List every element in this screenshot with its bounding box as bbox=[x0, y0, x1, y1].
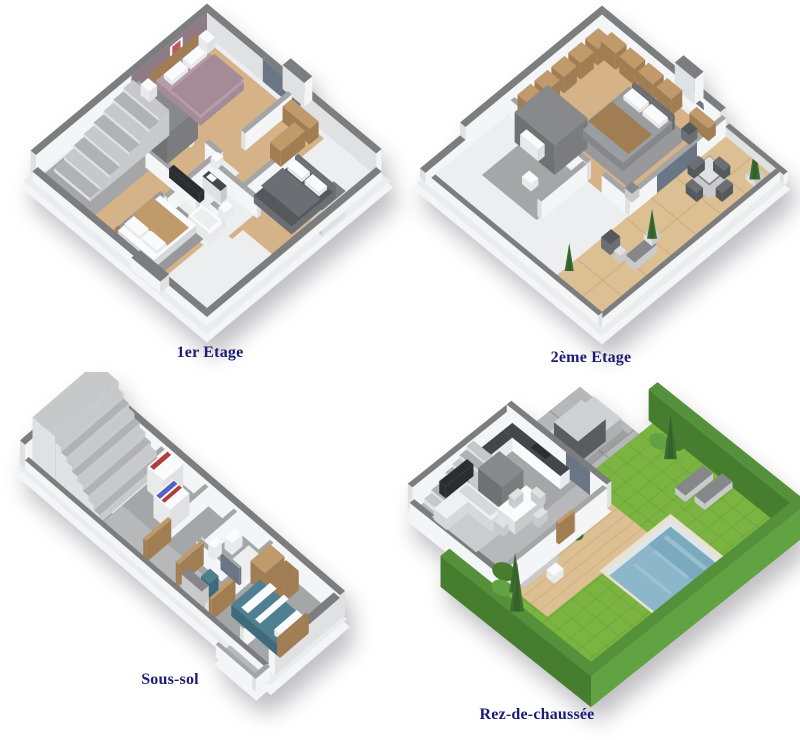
label-rez-de-chaussee: Rez-de-chaussée bbox=[447, 706, 627, 724]
label-1er-etage: 1er Etage bbox=[130, 344, 290, 362]
plan-rez-de-chaussee-rendering bbox=[378, 380, 800, 710]
plan-1er-etage-rendering bbox=[2, 0, 402, 348]
plan-sous-sol-rendering bbox=[0, 372, 372, 706]
label-sous-sol: Sous-sol bbox=[90, 671, 250, 689]
plan-2eme-etage-rendering bbox=[396, 2, 800, 354]
label-2eme-etage: 2ème Etage bbox=[509, 349, 673, 367]
floor-plan-sheet: 1er Etage 2ème Etage Sous-sol Rez-de-cha… bbox=[0, 0, 800, 740]
